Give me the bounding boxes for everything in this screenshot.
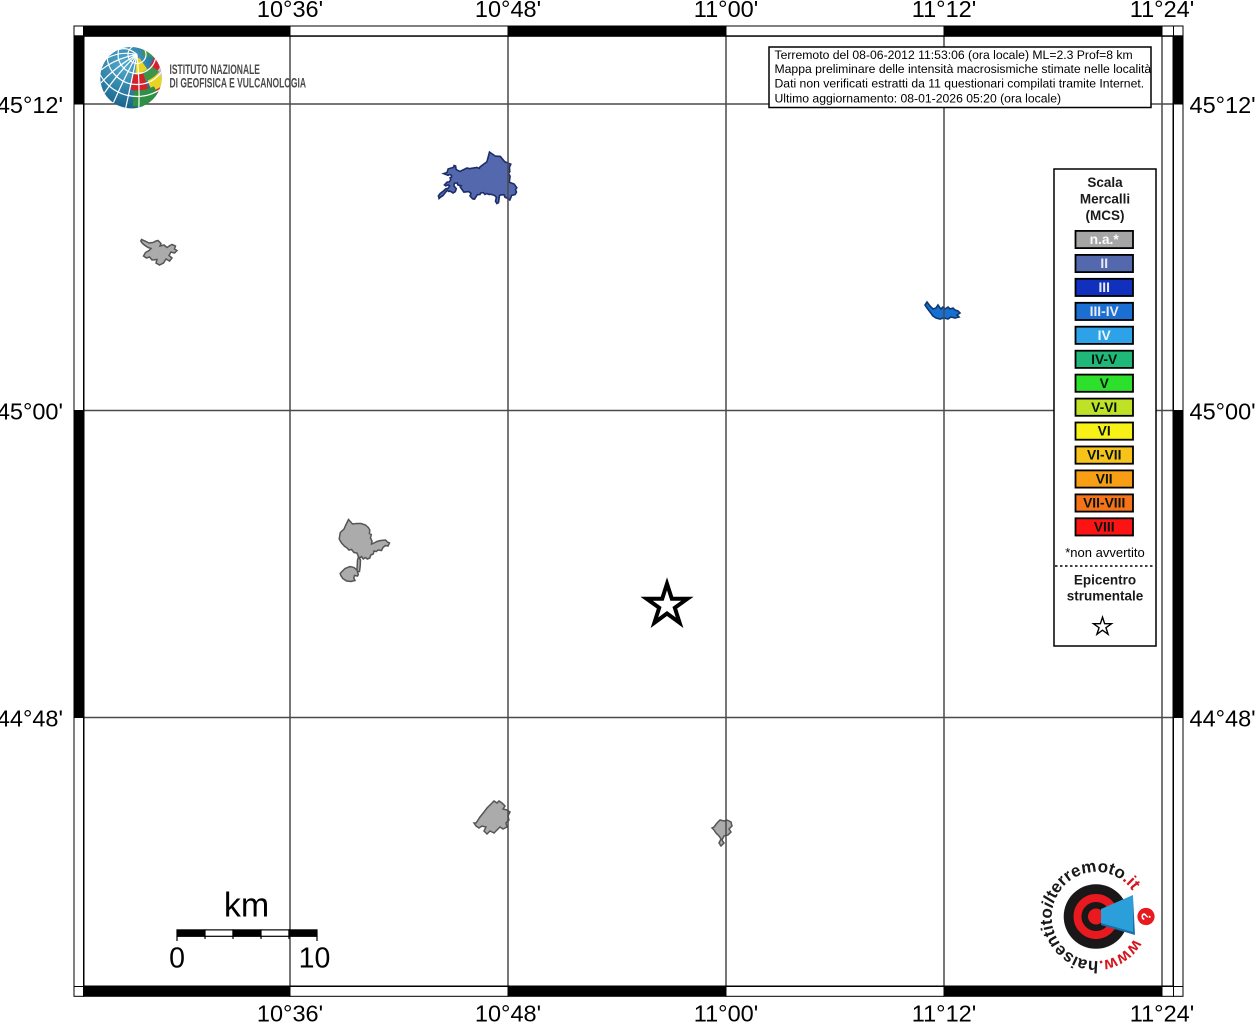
svg-text:Epicentro: Epicentro [1074, 573, 1136, 588]
svg-text:10°36': 10°36' [257, 0, 323, 22]
svg-text:III-IV: III-IV [1090, 304, 1120, 319]
svg-text:III: III [1098, 280, 1110, 295]
svg-text:VIII: VIII [1094, 520, 1115, 535]
svg-text:0: 0 [169, 943, 185, 975]
svg-text:10: 10 [299, 943, 331, 975]
svg-text:10°48': 10°48' [475, 1001, 541, 1024]
svg-text:11°12': 11°12' [912, 0, 976, 22]
svg-text:11°00': 11°00' [694, 1001, 758, 1024]
svg-text:45°12': 45°12' [1190, 92, 1256, 118]
svg-text:Terremoto del 08-06-2012 11:53: Terremoto del 08-06-2012 11:53:06 (ora l… [775, 48, 1133, 62]
svg-text:VII: VII [1096, 472, 1113, 487]
svg-text:strumentale: strumentale [1067, 589, 1144, 604]
svg-text:Mercalli: Mercalli [1080, 192, 1130, 207]
svg-text:Scala: Scala [1087, 175, 1123, 190]
svg-text:Ultimo aggiornamento: 08-01-20: Ultimo aggiornamento: 08-01-2026 05:20 (… [775, 91, 1062, 105]
svg-text:VII-VIII: VII-VIII [1083, 496, 1125, 511]
svg-text:11°12': 11°12' [912, 1001, 976, 1024]
svg-text:44°48': 44°48' [0, 705, 63, 731]
svg-text:IV-V: IV-V [1091, 352, 1118, 367]
svg-text:II: II [1100, 256, 1108, 271]
svg-text:10°48': 10°48' [475, 0, 541, 22]
svg-text:DI GEOFISICA E VULCANOLOGIA: DI GEOFISICA E VULCANOLOGIA [170, 77, 307, 91]
svg-text:IV: IV [1098, 328, 1112, 343]
svg-text:n.a.*: n.a.* [1090, 232, 1120, 247]
svg-text:ISTITUTO NAZIONALE: ISTITUTO NAZIONALE [170, 63, 261, 77]
svg-text:45°00': 45°00' [1190, 398, 1256, 424]
svg-text:km: km [224, 887, 269, 925]
svg-text:VI: VI [1098, 424, 1111, 439]
svg-text:11°00': 11°00' [694, 0, 758, 22]
svg-text:V: V [1100, 376, 1110, 391]
svg-text:V-VI: V-VI [1091, 400, 1117, 415]
svg-text:?: ? [1139, 912, 1154, 920]
svg-text:44°48': 44°48' [1190, 705, 1256, 731]
svg-text:Dati non verificati estratti d: Dati non verificati estratti da 11 quest… [775, 77, 1145, 91]
svg-text:*non avvertito: *non avvertito [1065, 545, 1145, 560]
svg-text:11°24': 11°24' [1130, 1001, 1194, 1024]
svg-text:11°24': 11°24' [1130, 0, 1194, 22]
svg-text:VI-VII: VI-VII [1087, 448, 1122, 463]
svg-text:Mappa preliminare delle intens: Mappa preliminare delle intensità macros… [775, 62, 1152, 76]
svg-text:10°36': 10°36' [257, 1001, 323, 1024]
svg-text:45°12': 45°12' [0, 92, 63, 118]
svg-text:45°00': 45°00' [0, 398, 63, 424]
svg-text:(MCS): (MCS) [1086, 208, 1125, 223]
